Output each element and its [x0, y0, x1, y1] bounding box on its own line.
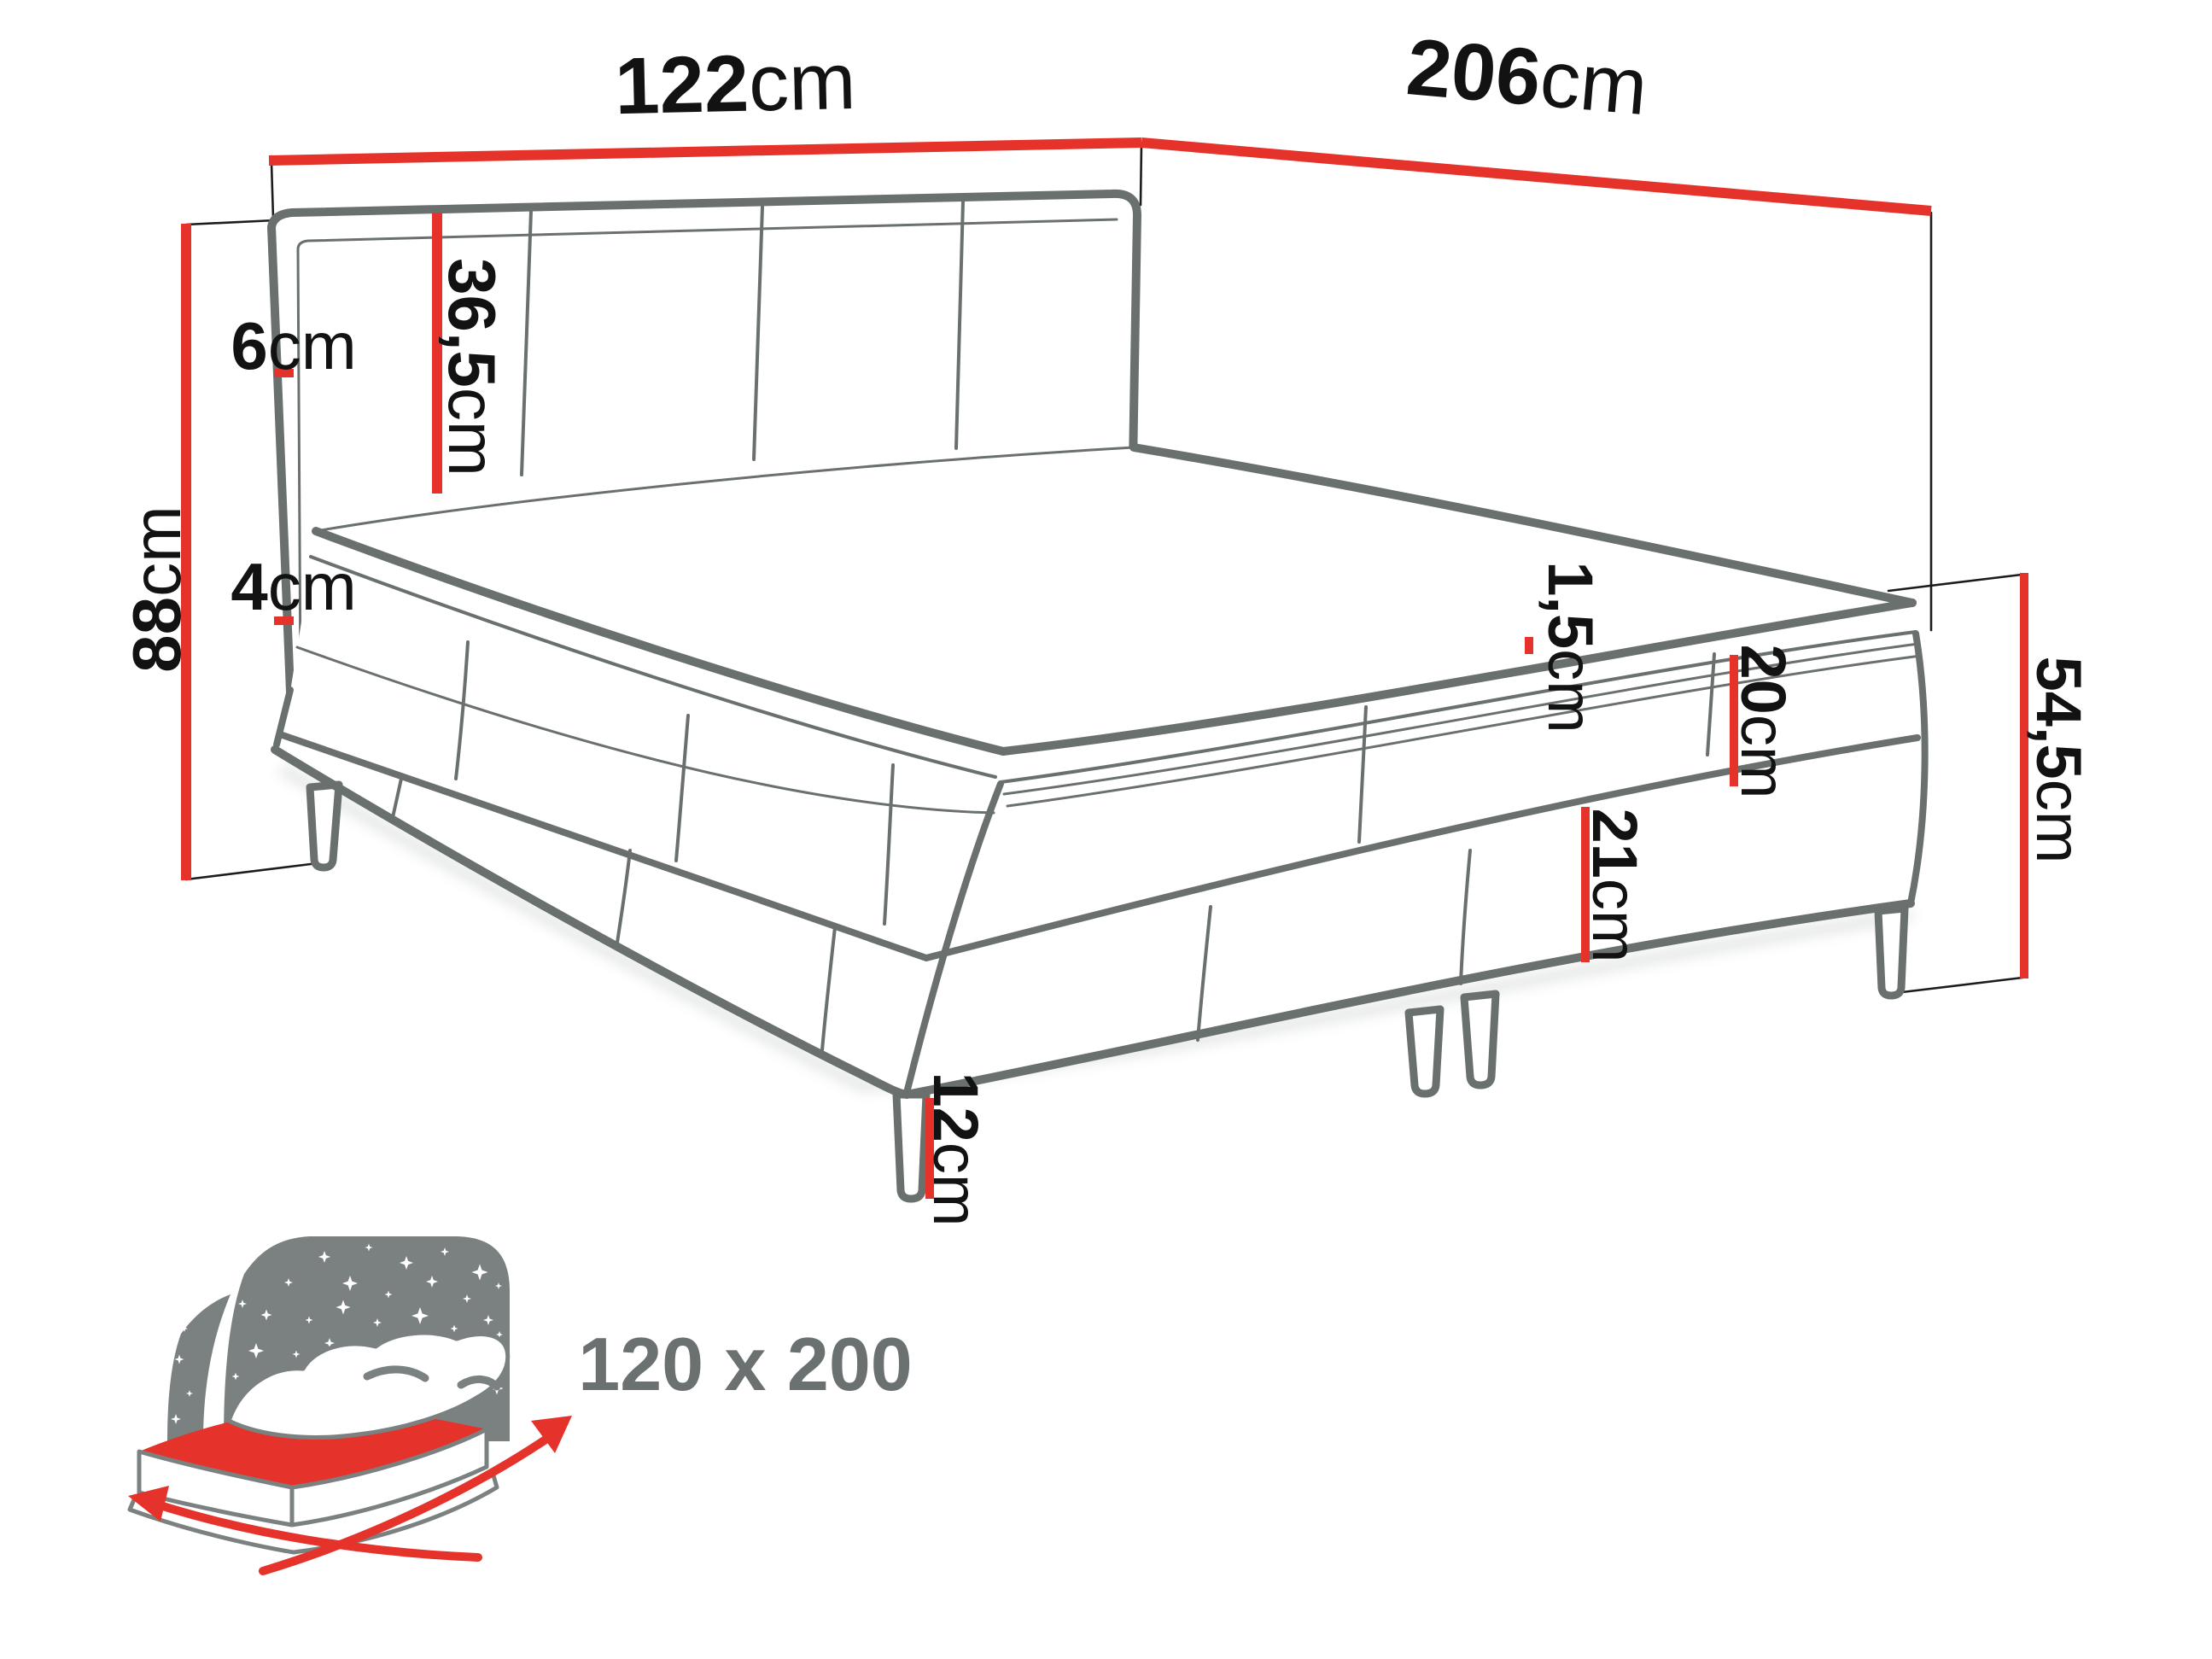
- bed-dimensions-diagram: 122cm 206cm 88cm 6cm 36,5cm 4cm 1,5cm 20…: [0, 0, 2212, 1659]
- dim-label-mattress-gap: 1,5cm: [1536, 561, 1607, 733]
- dim-label-topper-thickness: 4cm: [231, 549, 356, 624]
- bed-size-icon: [128, 1236, 572, 1571]
- diagram-page: 122cm 206cm 88cm 6cm 36,5cm 4cm 1,5cm 20…: [0, 0, 2212, 1659]
- extension-line: [186, 220, 275, 225]
- dim-label-lower-box: 21cm: [1580, 809, 1651, 963]
- leg-back-left: [310, 785, 339, 867]
- leg-back-right: [1878, 908, 1905, 996]
- leg-middle-right: [1464, 994, 1496, 1085]
- dim-line-headboard-width: [269, 143, 1141, 161]
- extension-line: [1888, 575, 2022, 591]
- dim-label-total-height: 88cm: [119, 505, 195, 673]
- leg-middle-left: [1409, 1009, 1440, 1094]
- dim-label-upper-box: 20cm: [1729, 645, 1800, 799]
- dim-label-base-height: 54,5cm: [2024, 657, 2095, 864]
- extension-line: [1902, 978, 2022, 992]
- dim-line-total-length: [1141, 143, 1931, 211]
- size-label: 120 x 200: [578, 1322, 913, 1406]
- extension-line: [1141, 144, 1141, 205]
- extension-line: [271, 163, 273, 219]
- dim-label-headboard-panel: 36,5cm: [435, 258, 510, 476]
- dim-label-total-length: 206cm: [1404, 21, 1651, 131]
- extension-line: [186, 863, 318, 879]
- dim-label-headboard-thickness: 6cm: [231, 308, 356, 383]
- dim-label-headboard-width: 122cm: [614, 36, 856, 131]
- dim-label-leg-height: 12cm: [921, 1072, 992, 1227]
